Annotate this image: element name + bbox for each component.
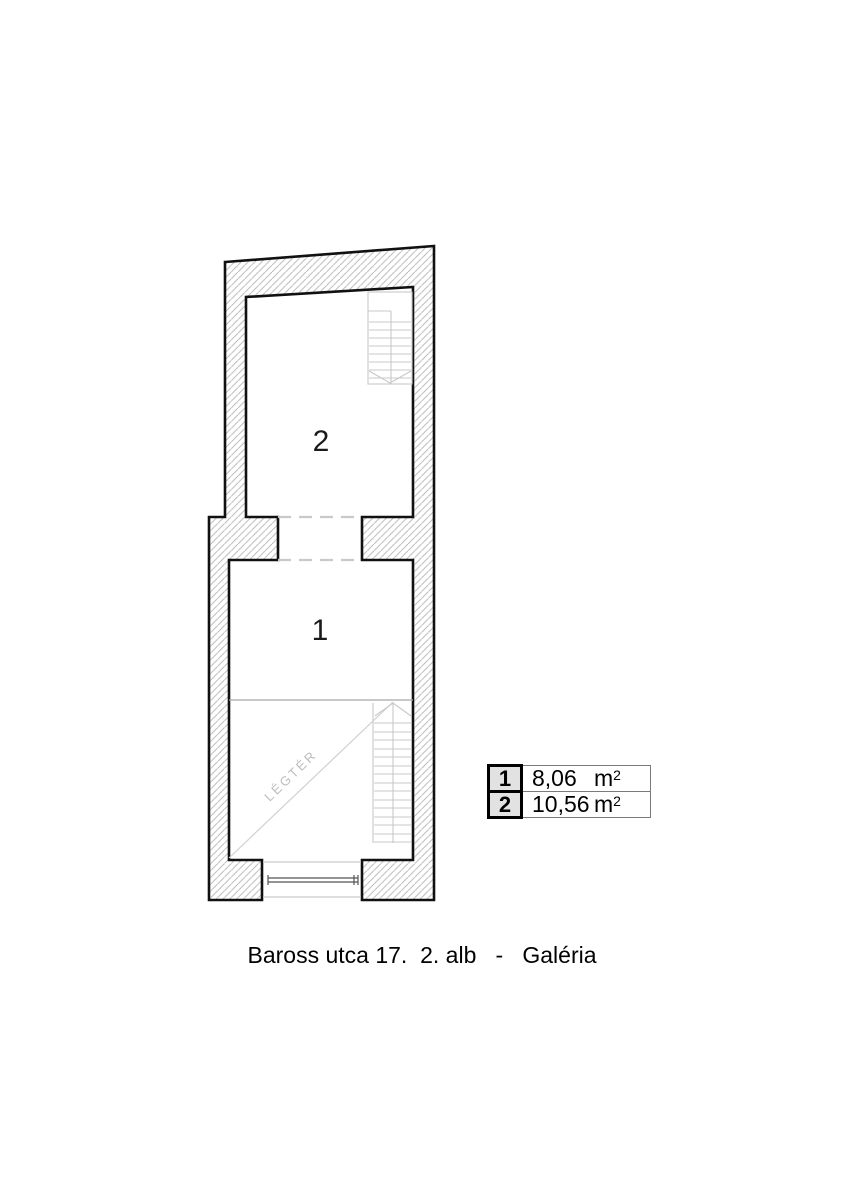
room-label-2: 2 bbox=[313, 425, 330, 458]
legend-row: 2 10,56m2 bbox=[489, 792, 651, 818]
legend-room-number-cell: 1 bbox=[489, 766, 522, 792]
legend-area-value: 8,06 bbox=[532, 767, 594, 790]
drawing-page: 2 1 LÉGTÉR 1 8,06m2 2 10,56m2 Baross utc… bbox=[0, 0, 844, 1190]
legend-row: 1 8,06m2 bbox=[489, 766, 651, 792]
railing bbox=[268, 875, 358, 885]
area-legend: 1 8,06m2 2 10,56m2 bbox=[487, 764, 651, 819]
legend-area-cell: 8,06m2 bbox=[522, 766, 651, 792]
room-label-1: 1 bbox=[312, 614, 329, 647]
legend-area-unit: m2 bbox=[594, 765, 621, 791]
legend-area-cell: 10,56m2 bbox=[522, 792, 651, 818]
window-sill-lines bbox=[263, 862, 361, 897]
legend-area-unit: m2 bbox=[594, 791, 621, 817]
staircase-lower bbox=[373, 703, 411, 843]
wall-structure bbox=[209, 246, 434, 900]
void-diagonal-line bbox=[229, 702, 393, 858]
void-label: LÉGTÉR bbox=[261, 747, 320, 804]
staircase-upper bbox=[368, 292, 412, 384]
passage-dashed-lines bbox=[278, 517, 362, 560]
legend-room-number-cell: 2 bbox=[489, 792, 522, 818]
legend-area-value: 10,56 bbox=[532, 793, 594, 816]
floor-plan-svg: 2 1 LÉGTÉR bbox=[0, 0, 844, 1190]
drawing-caption: Baross utca 17. 2. alb - Galéria bbox=[0, 942, 844, 969]
